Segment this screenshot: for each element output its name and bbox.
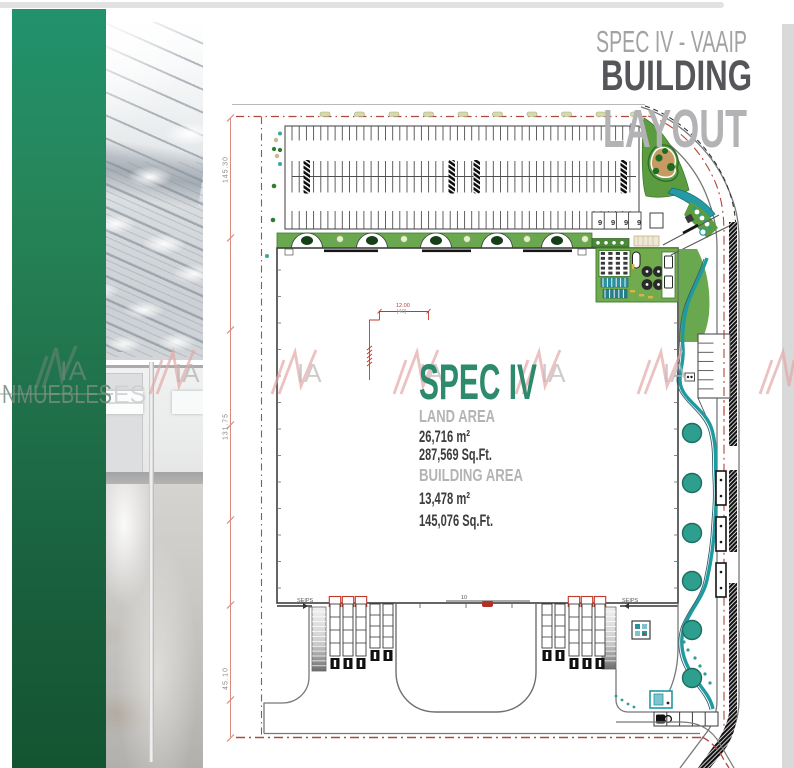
svg-text:[40]: [40] (397, 309, 407, 315)
svg-text:IA: IA (297, 358, 322, 388)
svg-text:9: 9 (637, 218, 641, 227)
svg-text:ES: ES (113, 381, 146, 409)
svg-text:145.30: 145.30 (223, 157, 230, 183)
svg-text:9: 9 (598, 218, 602, 227)
svg-text:IA: IA (663, 358, 688, 388)
svg-text:9: 9 (624, 218, 628, 227)
svg-text:SEIPS: SEIPS (622, 598, 639, 604)
svg-text:SEIPS: SEIPS (297, 598, 314, 604)
svg-text:IA: IA (175, 358, 200, 388)
svg-text:45.10: 45.10 (223, 668, 230, 690)
svg-text:10: 10 (461, 595, 467, 601)
svg-text:9: 9 (611, 218, 615, 227)
svg-text:IA: IA (541, 358, 566, 388)
